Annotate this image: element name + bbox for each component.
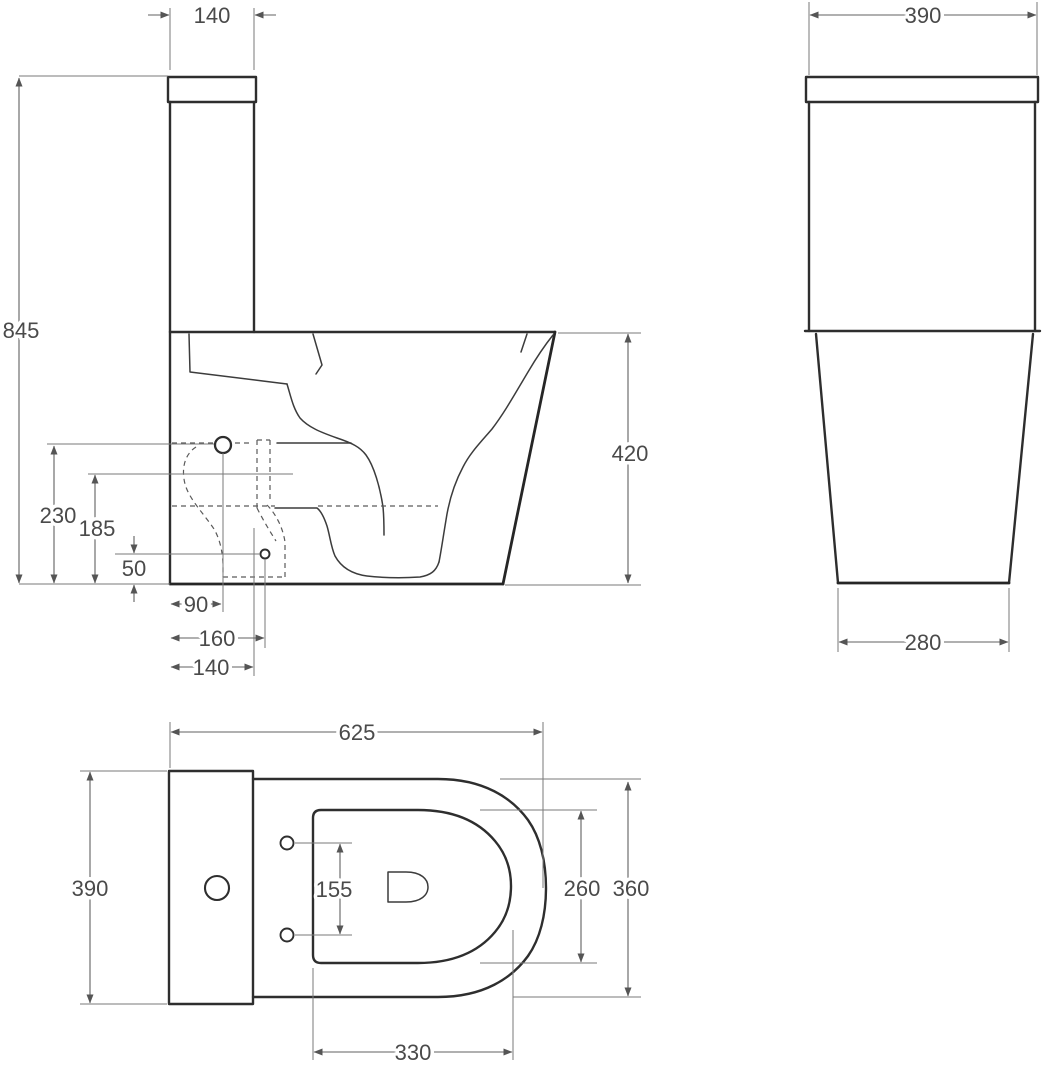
dim-label-hole-spacing: 155 xyxy=(316,877,353,902)
dim-label-bowl-height: 420 xyxy=(612,441,649,466)
ext-625 xyxy=(170,722,543,888)
side-tank-body-outline xyxy=(170,102,254,332)
dim-label-140b: 140 xyxy=(193,655,230,680)
side-tank-lid-outline xyxy=(168,77,256,102)
front-tank-lid-outline xyxy=(806,77,1038,102)
side-flush-valve-line xyxy=(313,334,322,374)
front-tank-body-outline xyxy=(809,102,1035,331)
top-flush-outlet xyxy=(388,872,428,902)
dim-label-50: 50 xyxy=(122,556,146,581)
dim-label-total-height: 845 xyxy=(3,318,40,343)
front-view: 390 280 xyxy=(805,2,1040,655)
side-view: 140 845 230 185 50 90 160 140 420 xyxy=(3,3,649,680)
side-fixing-hole xyxy=(261,550,270,559)
dim-label-160: 160 xyxy=(199,626,236,651)
side-supply-hole xyxy=(215,437,231,453)
top-seat-hole-upper xyxy=(281,837,294,850)
dim-label-top-width: 390 xyxy=(72,876,109,901)
drawing-svg: 140 845 230 185 50 90 160 140 420 390 28… xyxy=(0,0,1043,1067)
dim-label-inner-length: 330 xyxy=(395,1040,432,1065)
dim-label-185: 185 xyxy=(79,516,116,541)
dim-label-total-length: 625 xyxy=(339,720,376,745)
dim-label-inner-width: 260 xyxy=(564,876,601,901)
top-seat-hole-lower xyxy=(281,929,294,942)
front-pedestal-sides xyxy=(816,334,1033,583)
dim-label-front-width: 390 xyxy=(905,3,942,28)
dim-label-base-width: 280 xyxy=(905,630,942,655)
technical-drawing: 140 845 230 185 50 90 160 140 420 390 28… xyxy=(0,0,1043,1067)
side-trap-left-dashed xyxy=(183,447,223,577)
dim-label-90: 90 xyxy=(184,592,208,617)
top-body-outline xyxy=(253,779,546,997)
side-rim-tick xyxy=(521,334,527,352)
side-under-tank-ledge xyxy=(189,334,287,384)
side-sump-curve xyxy=(275,508,439,578)
dim-label-tank-width-top: 140 xyxy=(194,3,231,28)
top-view: 625 390 155 260 360 330 xyxy=(72,720,650,1065)
side-bowl-front-curve xyxy=(439,335,553,562)
top-tank-supply-hole xyxy=(205,876,229,900)
side-bowl-rear-curve xyxy=(287,384,384,535)
dim-label-230: 230 xyxy=(40,503,77,528)
dim-label-bowl-width: 360 xyxy=(613,876,650,901)
